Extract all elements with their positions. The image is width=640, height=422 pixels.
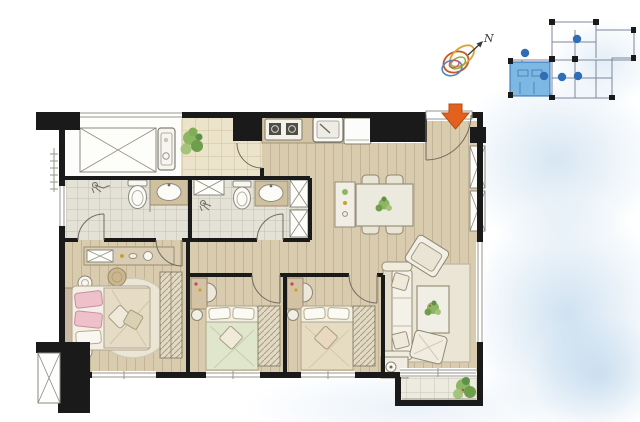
- wall-block: [233, 113, 262, 141]
- bed: [301, 306, 353, 370]
- desk: [287, 278, 303, 309]
- burner-right: [286, 123, 298, 135]
- sofa: [382, 262, 412, 360]
- vanity-sink: [255, 181, 288, 206]
- kitchen-appliances: [265, 117, 371, 144]
- washer-knob: [164, 138, 168, 142]
- unit-badge: [574, 72, 582, 80]
- wardrobe: [353, 306, 375, 366]
- floor-plan-svg: N: [0, 0, 640, 422]
- pink-pillow: [74, 290, 103, 308]
- bed: [206, 306, 258, 370]
- unit-badge: [540, 72, 548, 80]
- pillow: [233, 307, 255, 319]
- stool: [108, 268, 126, 286]
- pink-pillow: [74, 311, 102, 329]
- floor-plan-page: N: [0, 0, 640, 422]
- bath-window: [58, 186, 66, 226]
- keyplan: [508, 19, 636, 100]
- sideboard: [335, 182, 355, 227]
- wall-block: [36, 342, 90, 353]
- dresser: [84, 247, 174, 265]
- property-line-hatch: [50, 148, 58, 192]
- unit-badge: [558, 73, 566, 81]
- north-compass-icon: N: [440, 32, 494, 78]
- pillow: [328, 307, 350, 319]
- desk: [191, 278, 207, 309]
- coffee-table: [417, 286, 449, 333]
- ac-ledge-x-box: [38, 353, 60, 403]
- wall-block: [36, 112, 80, 130]
- stool: [192, 310, 203, 321]
- toilet: [233, 181, 251, 209]
- vanity-sink: [150, 179, 188, 205]
- sofa-pillow: [392, 331, 410, 349]
- pillow: [209, 307, 231, 319]
- dining-area: [335, 175, 413, 234]
- wardrobe: [160, 272, 182, 358]
- wall-block: [470, 127, 486, 143]
- wall-block: [58, 352, 90, 413]
- laundry-opening: [80, 111, 182, 119]
- pillow: [304, 307, 326, 319]
- washing-machine: [158, 128, 175, 170]
- burner-left: [269, 123, 281, 135]
- headboard: [64, 288, 72, 348]
- compass-n-label: N: [483, 32, 494, 45]
- living-window: [476, 242, 484, 342]
- master-bed: [64, 286, 150, 350]
- wall-block: [370, 112, 427, 142]
- toilet: [128, 180, 147, 209]
- stool: [288, 310, 299, 321]
- unit-badge: [521, 49, 529, 57]
- wardrobe: [258, 306, 280, 366]
- unit-badge: [573, 35, 581, 43]
